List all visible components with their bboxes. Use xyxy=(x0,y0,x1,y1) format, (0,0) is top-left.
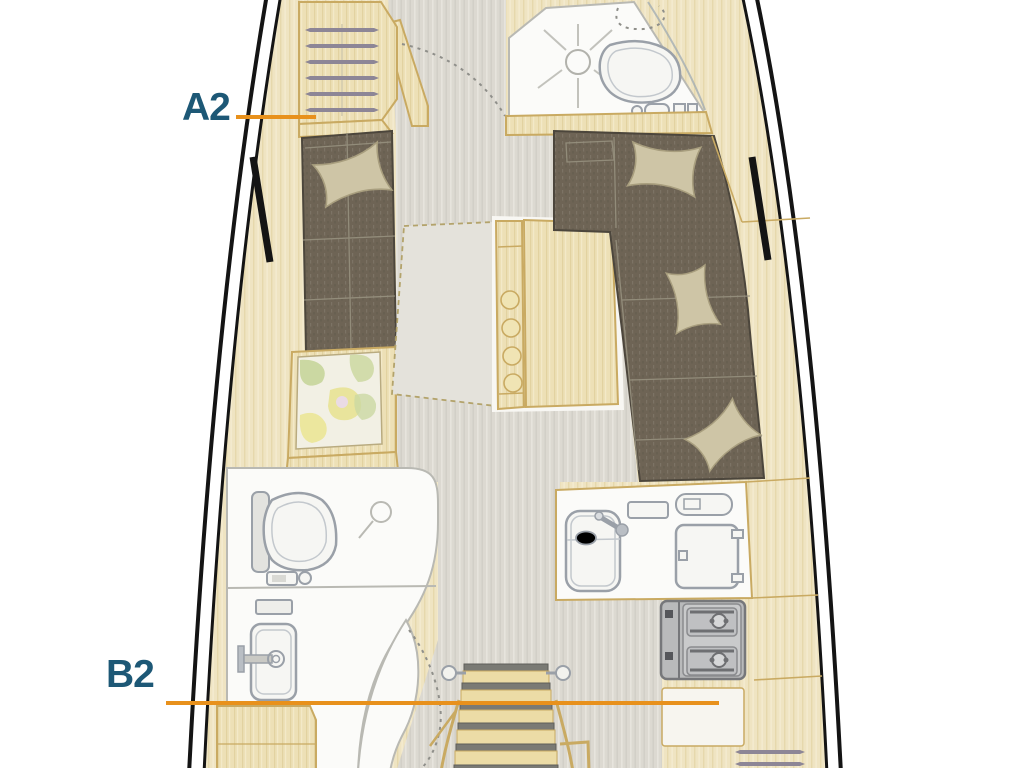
sink-soap-dish xyxy=(576,532,596,545)
galley-stove xyxy=(661,601,745,679)
step-rows xyxy=(454,664,558,768)
forward-toilet xyxy=(600,41,680,102)
galley-tray xyxy=(628,502,668,518)
aft-head xyxy=(217,468,441,768)
salon-table xyxy=(392,216,624,412)
stove-knob xyxy=(665,610,673,618)
port-settee xyxy=(302,131,396,352)
table-top xyxy=(524,220,618,407)
callout-label-a2: A2 xyxy=(182,88,230,127)
vanity-shelf xyxy=(256,600,292,614)
stove-knob xyxy=(665,652,673,660)
head-aft-wall xyxy=(506,112,712,135)
stove-burner xyxy=(687,608,737,636)
aft-toilet-controls xyxy=(267,572,311,585)
nav-chart-table xyxy=(286,347,398,476)
aft-locker xyxy=(662,688,744,746)
callout-label-b2: B2 xyxy=(106,655,154,694)
galley xyxy=(556,482,752,600)
boat-floorplan-canvas: A2 B2 xyxy=(0,0,1024,768)
aft-toilet-bowl xyxy=(264,493,337,570)
table-folded-leaf-dashed xyxy=(392,222,496,406)
aft-head-vanity-cabinet xyxy=(217,706,316,768)
stove-burner xyxy=(687,647,737,675)
